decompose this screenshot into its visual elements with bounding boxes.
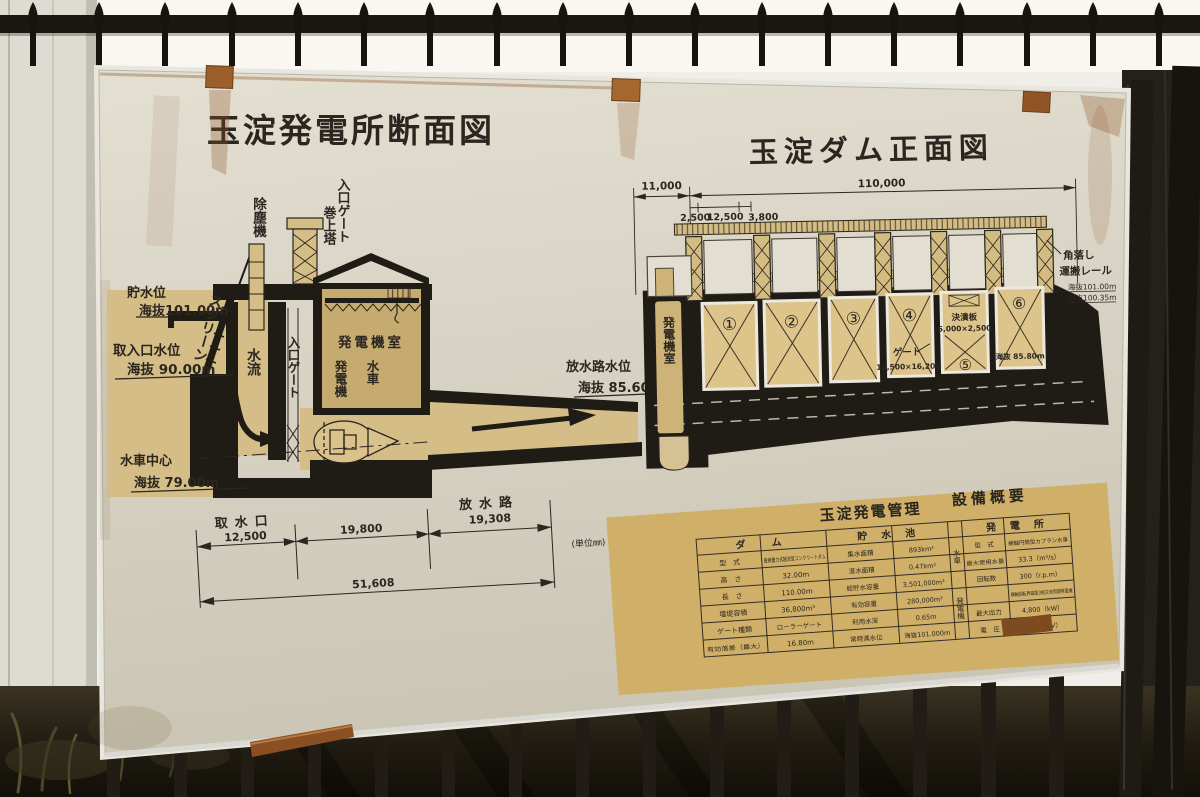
stoplog-label-2: 運搬レール (1059, 264, 1112, 278)
gate-3: ③ (829, 297, 879, 382)
cell: 利用水深 (852, 616, 879, 627)
cell: 長 さ (721, 592, 743, 601)
dim-intake-value: 12,500 (224, 529, 267, 544)
front-view-title: 玉淀ダム正面図 (749, 130, 995, 169)
inlet-gate-label: 入口ゲート (286, 336, 301, 399)
cell: 集水面積 (847, 548, 874, 559)
cell: 湛水面積 (848, 565, 875, 576)
dim-12500: 12,500 (707, 212, 744, 224)
gantry-tower (985, 230, 1002, 294)
dim-total-value: 51,608 (352, 576, 395, 591)
generator-group-label: 発電機 (955, 596, 966, 621)
breach-board-label: 決潰板 (952, 312, 978, 324)
hoist-house-door (655, 268, 674, 296)
draft-tube-outlet (659, 436, 690, 471)
dim-11000: 11,000 (641, 180, 682, 193)
dust-remover-ladder (249, 244, 264, 330)
cell: 型 式 (974, 540, 995, 550)
hoist-tower-label-2: 巻上塔 (321, 205, 338, 245)
rail-level-upper: 海抜101.00m (1068, 281, 1117, 292)
cell: 型 式 (719, 557, 741, 567)
front-generator-room-label: 発電機室 (661, 315, 676, 365)
reservoir-level-label: 貯水位 (127, 285, 166, 301)
crane-beam (325, 298, 419, 303)
rail-level-lower: 海抜100.35m (1068, 292, 1117, 303)
photo-canvas: 玉淀発電所断面図 (0, 0, 1200, 797)
gate-number: ③ (846, 309, 862, 329)
gate-number: ⑤ (958, 356, 972, 374)
generator-label: 発電機 (333, 359, 348, 398)
tailrace-level-label: 放水路水位 (565, 359, 631, 375)
turbine-group-label: 水車 (952, 547, 962, 565)
spec-table: 玉淀発電管理 設備概要 ダ ム 貯 水 池 発 電 所 型 式 直線重力式越流型… (606, 481, 1119, 696)
dim-110000: 110,000 (858, 177, 906, 190)
cell: 0.65m (915, 613, 936, 622)
gantry-tower (931, 231, 948, 295)
breach-board-size: 6,000×2,500 (938, 323, 992, 333)
cell: 有効容量 (851, 599, 878, 610)
gate-2: ② (764, 300, 821, 386)
flow-label: 水流 (245, 347, 261, 377)
turbine-center-label: 水車中心 (120, 453, 172, 469)
cell: 最大出力 (976, 607, 1003, 618)
dim-tailrace-value: 19,308 (468, 511, 511, 526)
gate-number: ② (784, 312, 800, 332)
gate-type-label: ゲート (893, 346, 922, 359)
cell: 回転数 (976, 573, 997, 583)
gate-number: ① (722, 315, 738, 335)
dust-remover-label: 除塵機 (250, 196, 267, 239)
gate-number: ⑥ (1012, 294, 1027, 313)
dim-tailrace-label: 放水路 (458, 494, 520, 513)
gantry-tower (875, 233, 892, 297)
gate-5: 決潰板 6,000×2,500 ⑤ (937, 291, 992, 374)
cross-section-title: 玉淀発電所断面図 (207, 111, 495, 150)
intake-block (190, 374, 238, 486)
vent-grille (388, 288, 410, 298)
cell: 電 圧 (980, 625, 1001, 634)
apron-level: 海抜 85.80m (996, 350, 1046, 361)
gantry-tower (754, 235, 771, 299)
gate-number: ④ (902, 306, 918, 326)
gantry-tower (819, 234, 836, 298)
cell: 高 さ (720, 574, 742, 584)
dim-mid-value: 19,800 (340, 522, 383, 537)
turbine-center-value: 海抜 79.00m (134, 475, 219, 491)
generator-room-label: 発電機室 (337, 334, 404, 351)
gate-size: 12,500×16,200 (876, 362, 940, 372)
stoplog-label-1: 角落し (1063, 248, 1095, 262)
gate-1: ① (702, 302, 758, 389)
intake-level-label: 取入口水位 (113, 342, 181, 359)
turbine-label: 水車 (365, 359, 380, 386)
gate-6: ⑥ 海抜 85.80m (994, 287, 1045, 368)
gantry-tower (1037, 229, 1054, 293)
hoist-tower-label-1: 入口ゲート (335, 178, 351, 243)
